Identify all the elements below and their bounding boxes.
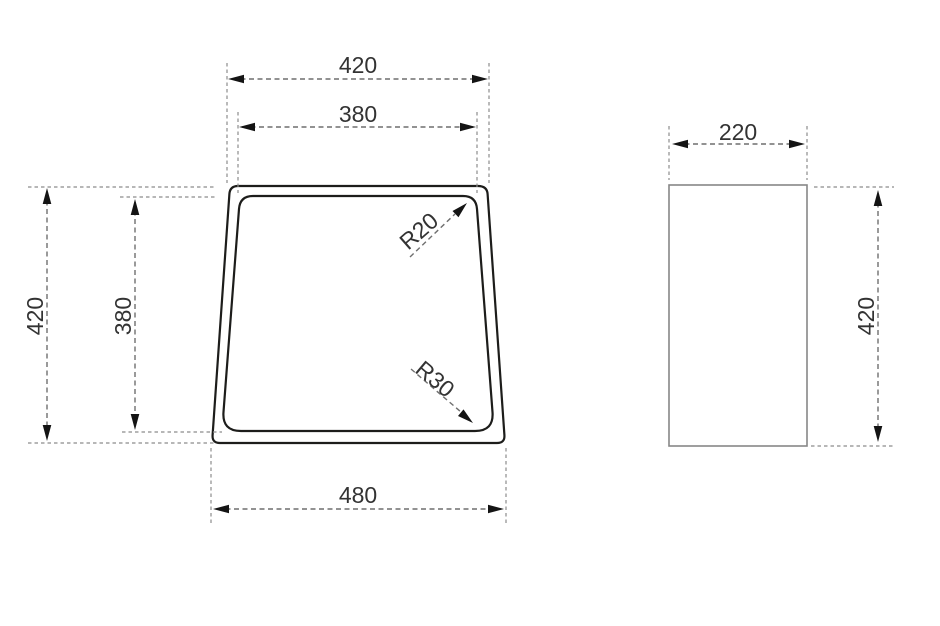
inner-profile-outline bbox=[223, 196, 492, 431]
side-profile-outline bbox=[669, 185, 807, 446]
arrowhead-right-icon bbox=[488, 505, 504, 514]
technical-drawing: 420 380 420 380 bbox=[0, 0, 940, 626]
dim-label-bottom: 480 bbox=[339, 482, 377, 508]
arrowhead-up-icon bbox=[874, 190, 883, 206]
radius-leader-r20: R20 bbox=[394, 200, 470, 257]
radius-leader-r30: R30 bbox=[411, 355, 476, 426]
dimension-bottom-width: 480 bbox=[211, 448, 506, 523]
arrowhead-right-icon bbox=[472, 75, 488, 84]
arrowhead-down-icon bbox=[874, 426, 883, 442]
arrowhead-diagonal-icon bbox=[458, 409, 476, 426]
arrowhead-up-icon bbox=[131, 199, 140, 215]
dim-label-top-inner: 380 bbox=[339, 101, 377, 127]
arrowhead-right-icon bbox=[460, 123, 476, 132]
outer-profile-outline bbox=[213, 186, 505, 443]
arrowhead-left-icon bbox=[213, 505, 229, 514]
dim-label-radius-bottom: R30 bbox=[411, 355, 460, 402]
dim-label-side-width: 220 bbox=[719, 119, 757, 145]
arrowhead-left-icon bbox=[228, 75, 244, 84]
arrowhead-down-icon bbox=[43, 425, 52, 441]
dim-label-left-inner: 380 bbox=[110, 297, 136, 335]
arrowhead-up-icon bbox=[43, 188, 52, 204]
arrowhead-down-icon bbox=[131, 414, 140, 430]
side-view: 220 420 bbox=[669, 119, 894, 446]
dimension-top-inner-width: 380 bbox=[238, 101, 477, 193]
dim-label-left-outer: 420 bbox=[22, 297, 48, 335]
top-view: 420 380 420 380 bbox=[22, 52, 506, 523]
arrowhead-right-icon bbox=[789, 140, 805, 149]
arrowhead-left-icon bbox=[672, 140, 688, 149]
dimension-side-height: 420 bbox=[811, 187, 894, 446]
arrowhead-left-icon bbox=[239, 123, 255, 132]
dim-label-side-height: 420 bbox=[853, 297, 879, 335]
technical-drawing-canvas: 420 380 420 380 bbox=[0, 0, 940, 626]
dim-label-top-outer: 420 bbox=[339, 52, 377, 78]
dimension-side-width: 220 bbox=[669, 119, 807, 180]
dim-label-radius-top: R20 bbox=[394, 207, 443, 254]
dimension-left-inner-height: 380 bbox=[110, 197, 222, 432]
